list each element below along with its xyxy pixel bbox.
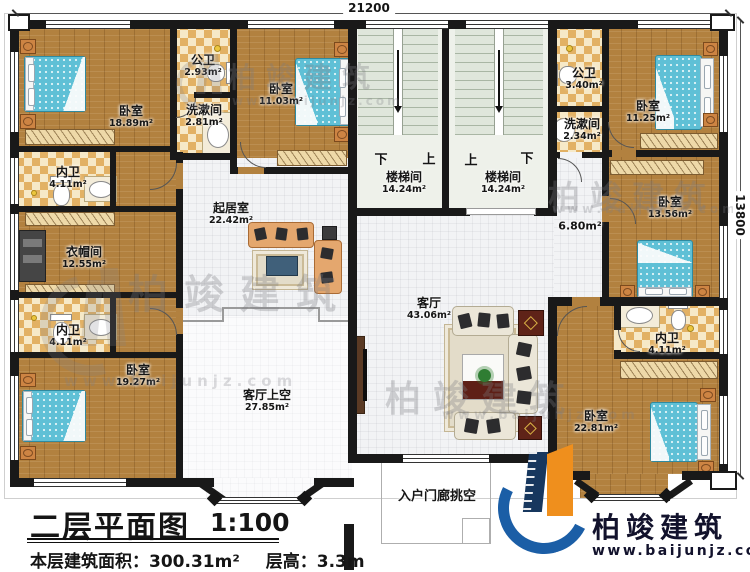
wall <box>348 20 357 463</box>
stair-arrow-head <box>495 106 503 113</box>
wall <box>548 20 557 214</box>
side-table <box>322 226 337 240</box>
info-height-value: 3.3m <box>317 552 365 572</box>
nightstand <box>20 114 36 129</box>
pillow <box>26 419 33 436</box>
void-edge <box>183 320 223 322</box>
closet <box>610 160 704 175</box>
sofa-pillow <box>457 313 472 329</box>
door-gap <box>238 167 264 174</box>
door-gap <box>176 308 183 334</box>
door-gap <box>560 152 582 158</box>
closet <box>620 361 718 379</box>
wardrobe-unit <box>19 230 46 282</box>
wall <box>110 292 116 358</box>
door-gap <box>602 196 609 222</box>
closet <box>640 133 718 149</box>
wall <box>15 146 177 152</box>
bed <box>295 58 350 126</box>
closet <box>25 129 115 145</box>
room-label-bedroom-tl: 卧室 18.89m² <box>109 104 153 130</box>
room-label-neiwei-r: 内卫 4.11m² <box>648 331 686 357</box>
window <box>638 20 718 29</box>
nightstand <box>703 42 718 56</box>
coffee-table <box>266 256 298 276</box>
window <box>466 20 548 29</box>
headboard <box>697 404 711 460</box>
sofa <box>248 222 314 248</box>
pillow <box>701 436 708 456</box>
void-edge <box>222 307 320 309</box>
room-label-stair-right: 楼梯间 14.24m² <box>481 170 525 196</box>
window <box>719 56 728 132</box>
wall <box>548 297 557 471</box>
wall <box>602 20 609 305</box>
sofa-pillow <box>275 227 288 240</box>
room-label-qijushi: 起居室 22.42m² <box>209 201 253 227</box>
plant <box>478 369 491 382</box>
room-label-bedroom-bl: 卧室 19.27m² <box>116 363 160 389</box>
bed <box>24 56 86 112</box>
pillow <box>645 288 663 295</box>
nightstand <box>700 388 716 402</box>
wall <box>15 206 177 212</box>
wall <box>15 352 177 358</box>
room-label-gongwei-tr: 公卫 3.40m² <box>565 66 603 92</box>
pillow <box>701 410 708 430</box>
wall <box>194 92 237 98</box>
nightstand <box>20 39 36 54</box>
window <box>10 376 19 460</box>
window <box>719 226 728 298</box>
brand-name: 柏竣建筑 <box>592 506 728 546</box>
closet <box>25 212 115 226</box>
wall <box>442 20 449 214</box>
sofa-pillow <box>296 227 308 240</box>
pillow <box>669 288 687 295</box>
info-area-value: 300.31m² <box>149 552 240 572</box>
side-table <box>518 416 542 440</box>
window <box>403 454 489 463</box>
door-gap <box>572 297 600 306</box>
room-label-neiwei-tl: 内卫 4.11m² <box>49 165 87 191</box>
pillow <box>339 68 346 88</box>
sofa-pillow <box>516 342 532 358</box>
window <box>46 20 130 29</box>
info-area-label: 本层建筑面积： <box>30 552 149 572</box>
bed-sheet <box>61 57 85 111</box>
stair-dir-label: 上 <box>422 149 435 168</box>
room-label-xishujian-tl: 洗漱间 2.81m² <box>185 103 223 129</box>
dimension-line-right <box>740 20 741 476</box>
plan-scale: 1:100 <box>210 508 290 537</box>
dimension-right: 13800 <box>733 191 747 239</box>
logo-building-icon <box>547 444 573 516</box>
door-gap <box>176 163 183 189</box>
pillow <box>704 65 711 89</box>
plan-info: 本层建筑面积：300.31m²层高：3.3m <box>30 547 365 572</box>
stair-dir-label: 上 <box>464 150 477 169</box>
stair-dir-label: 下 <box>374 149 387 168</box>
sofa-chaise <box>508 334 538 414</box>
pillow <box>26 397 33 414</box>
wall <box>15 292 177 298</box>
wall <box>170 20 177 160</box>
room-label-keting-void: 客厅上空 27.85m² <box>243 388 291 414</box>
room-label-bedroom-mr: 卧室 13.56m² <box>648 195 692 221</box>
window <box>719 396 728 464</box>
dimension-top: 21200 <box>343 1 395 15</box>
room-label-yimaojian: 衣帽间 12.55m² <box>62 245 106 271</box>
sofa-pillow <box>516 390 531 405</box>
bed <box>22 390 86 442</box>
wall <box>548 106 608 112</box>
wall <box>110 146 116 212</box>
room-label-bedroom-tr: 卧室 11.25m² <box>626 99 670 125</box>
side-table <box>518 310 544 336</box>
sofa-pillow <box>477 312 490 327</box>
brand-url: www.baijunjz.com <box>592 543 750 559</box>
bed <box>650 402 698 462</box>
room-label-xishujian-tr: 洗漱间 2.34m² <box>563 117 601 143</box>
stair-arrow-line <box>498 50 500 106</box>
tv-screen <box>363 349 367 401</box>
floor-plan: 卧室 18.89m² 公卫 2.93m² 洗漱间 2.81m² 卧室 11.03… <box>0 0 750 572</box>
room-label-porch-void: 入户门廊挑空 <box>398 489 476 505</box>
bed-sheet <box>60 391 85 441</box>
window <box>10 158 19 204</box>
floor-drain <box>31 190 37 196</box>
window <box>719 310 728 354</box>
sofa-pillow <box>254 227 267 241</box>
info-height-label: 层高： <box>266 552 317 572</box>
stair-arrow-line <box>397 50 399 106</box>
window <box>34 478 126 487</box>
sofa <box>454 412 516 440</box>
room-label-neiwei-bl: 内卫 4.11m² <box>49 323 87 349</box>
floor-drain <box>687 325 694 332</box>
room-label-keting: 客厅 43.06m² <box>407 296 451 322</box>
window <box>10 214 19 290</box>
nightstand <box>20 373 36 387</box>
title-underline <box>27 542 279 543</box>
wall <box>534 208 557 216</box>
sofa-pillow <box>516 366 532 381</box>
room-label-hallway: 6.80m² <box>558 219 601 232</box>
stair-arrow-head <box>394 106 402 113</box>
void-edge <box>318 320 350 322</box>
bed-sheet <box>651 403 669 461</box>
bed <box>637 240 693 298</box>
toilet-tank <box>50 314 72 321</box>
title-underline <box>27 538 279 540</box>
window <box>10 52 19 132</box>
light-fixture <box>566 45 573 52</box>
sofa-pillow <box>320 247 334 260</box>
stair-dir-label: 下 <box>520 148 533 167</box>
pillow <box>28 88 35 106</box>
window <box>366 20 448 29</box>
room-label-bedroom-br: 卧室 22.81m² <box>574 409 618 435</box>
pillow <box>339 97 346 117</box>
room-label-gongwei-tl: 公卫 2.93m² <box>184 53 222 79</box>
room-label-bedroom-tm: 卧室 11.03m² <box>259 82 303 108</box>
sofa-pillow <box>486 418 501 434</box>
porch-step <box>462 518 490 544</box>
pillow <box>28 64 35 82</box>
coffee-table <box>462 354 504 400</box>
sofa <box>314 240 342 294</box>
sofa <box>452 306 514 336</box>
wall-opening <box>466 208 536 215</box>
wall-notch <box>710 471 737 490</box>
nightstand <box>703 113 718 127</box>
sink <box>626 307 653 324</box>
nightstand <box>20 446 36 460</box>
door-gap <box>612 150 636 157</box>
bed-sheet <box>638 241 692 263</box>
sofa-pillow <box>320 271 333 284</box>
floor-drain <box>31 315 37 321</box>
window <box>248 20 334 29</box>
toilet <box>671 310 686 330</box>
sofa-pillow <box>464 418 479 434</box>
bay-window <box>216 497 306 504</box>
window <box>10 300 19 352</box>
room-label-stair-left: 楼梯间 14.24m² <box>382 170 426 196</box>
closet <box>277 150 347 166</box>
light-fixture <box>214 45 221 52</box>
wall <box>348 208 470 216</box>
sofa-pillow <box>496 313 509 328</box>
void-edge <box>222 308 224 322</box>
wall-notch <box>8 14 30 31</box>
